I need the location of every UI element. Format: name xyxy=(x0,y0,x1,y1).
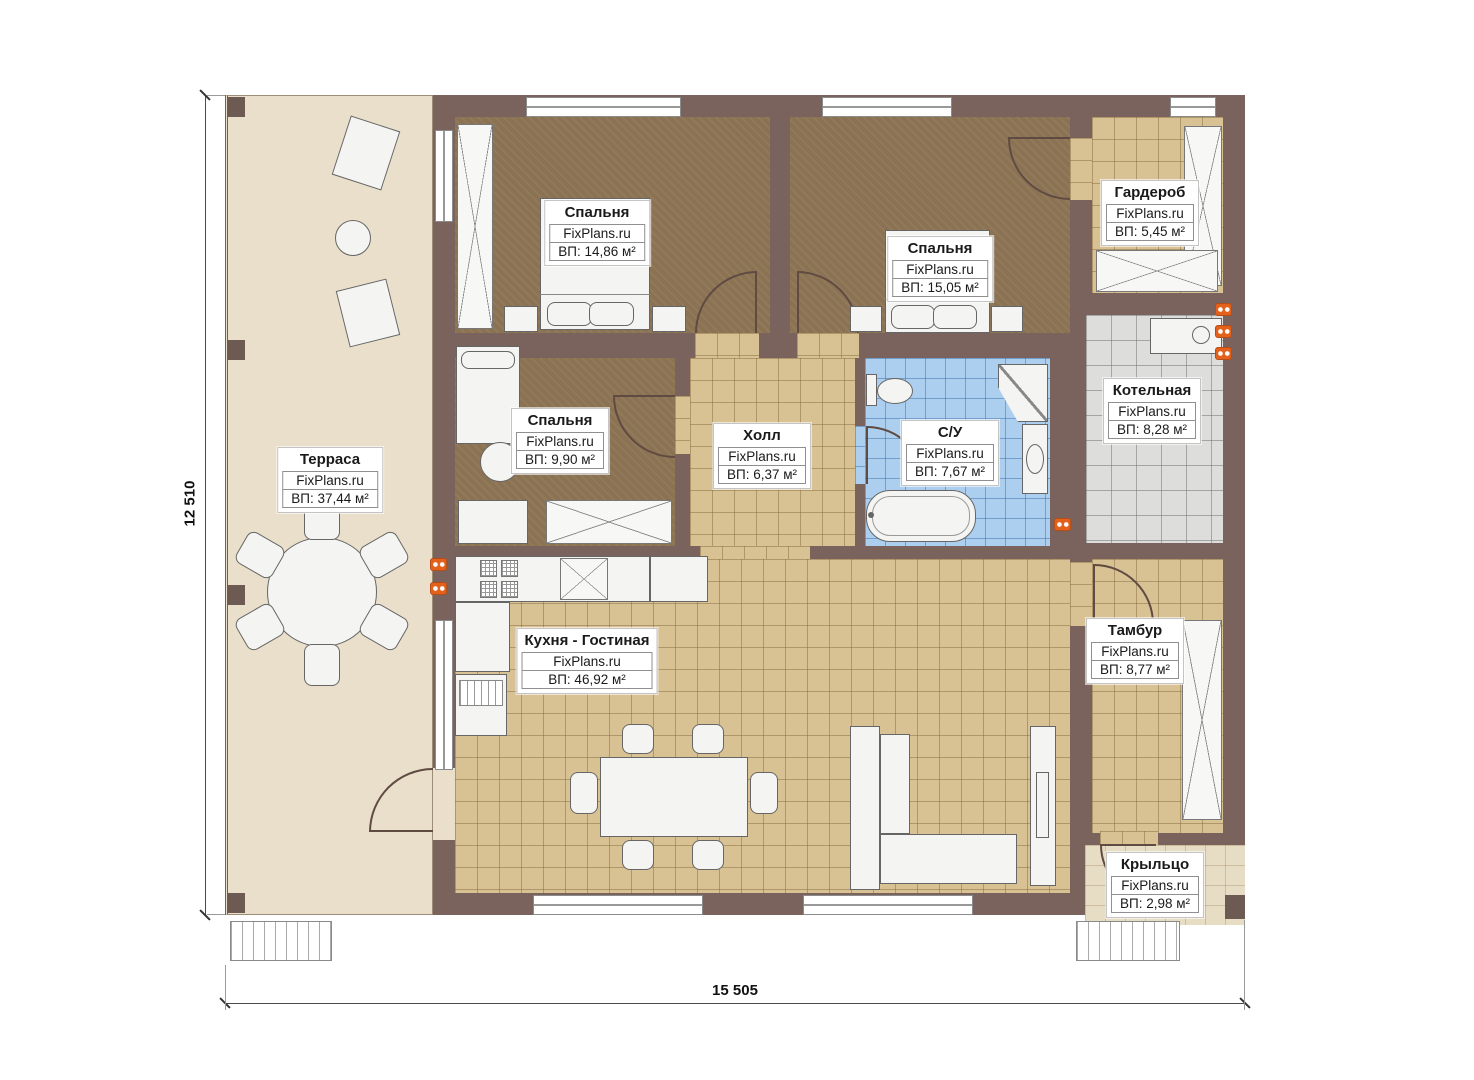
radiator-icon xyxy=(1054,518,1071,531)
pillow xyxy=(589,302,634,326)
room-label-bedroom2: Спальня FixPlans.ru ВП: 15,05 м² xyxy=(887,236,993,302)
room-name: Кухня - Гостиная xyxy=(522,632,653,652)
room-name: Гардероб xyxy=(1106,184,1194,204)
door-leaf xyxy=(1100,844,1156,846)
extension-line xyxy=(1244,920,1245,1010)
door-opening xyxy=(1070,562,1092,626)
room-area: ВП: 6,37 м² xyxy=(718,466,806,484)
room-area: ВП: 14,86 м² xyxy=(549,243,645,261)
room-area: ВП: 5,45 м² xyxy=(1106,223,1194,241)
porch-steps xyxy=(1076,921,1180,961)
tv xyxy=(1036,772,1049,838)
room-label-bathroom: С/У FixPlans.ru ВП: 7,67 м² xyxy=(901,420,999,486)
window xyxy=(1170,97,1216,117)
chair xyxy=(622,724,654,754)
wardrobe xyxy=(546,500,672,544)
brand-watermark: FixPlans.ru xyxy=(1108,402,1196,421)
door-opening xyxy=(855,426,865,484)
kitchen-sink xyxy=(560,558,608,600)
room-area: ВП: 15,05 м² xyxy=(892,279,988,297)
pillow xyxy=(933,305,977,329)
room-label-wardrobe: Гардероб FixPlans.ru ВП: 5,45 м² xyxy=(1101,180,1199,246)
bed-line xyxy=(540,294,650,295)
extension-line xyxy=(225,965,226,1010)
side-table xyxy=(335,220,371,256)
radiator-icon xyxy=(430,558,447,571)
pillow xyxy=(461,351,515,369)
radiator-icon xyxy=(1215,303,1232,316)
sink xyxy=(1026,444,1044,474)
toilet xyxy=(877,378,913,404)
nightstand xyxy=(652,306,686,332)
brand-watermark: FixPlans.ru xyxy=(516,432,604,451)
room-name: Котельная xyxy=(1108,382,1196,402)
room-name: С/У xyxy=(906,424,994,444)
stove-burner xyxy=(480,581,497,598)
room-area: ВП: 8,28 м² xyxy=(1108,421,1196,439)
wardrobe xyxy=(1182,620,1222,820)
wardrobe xyxy=(457,124,493,329)
room-area: ВП: 37,44 м² xyxy=(282,490,378,508)
door-leaf xyxy=(1093,564,1095,624)
room-label-kitchen-living: Кухня - Гостиная FixPlans.ru ВП: 46,92 м… xyxy=(517,628,658,694)
terrace-post xyxy=(227,340,245,360)
room-label-bedroom3: Спальня FixPlans.ru ВП: 9,90 м² xyxy=(511,408,609,474)
room-area: ВП: 9,90 м² xyxy=(516,451,604,469)
pillow xyxy=(547,302,592,326)
terrace-post xyxy=(227,97,245,117)
room-name: Холл xyxy=(718,427,806,447)
window xyxy=(435,130,453,222)
boiler-counter xyxy=(1150,318,1222,354)
door-opening xyxy=(797,333,859,358)
door-leaf xyxy=(613,395,675,397)
desk xyxy=(458,500,528,544)
door-leaf xyxy=(797,271,799,333)
chair xyxy=(304,644,340,686)
room-area: ВП: 7,67 м² xyxy=(906,463,994,481)
dimension-label-width: 15 505 xyxy=(685,982,785,999)
boiler-sink xyxy=(1192,326,1210,344)
brand-watermark: FixPlans.ru xyxy=(549,224,645,243)
chair xyxy=(692,840,724,870)
door-opening xyxy=(1070,138,1092,200)
brand-watermark: FixPlans.ru xyxy=(1091,642,1179,661)
dimension-label-height: 12 510 xyxy=(182,464,199,544)
terrace-post xyxy=(227,585,245,605)
room-area: ВП: 46,92 м² xyxy=(522,671,653,689)
brand-watermark: FixPlans.ru xyxy=(892,260,988,279)
room-area: ВП: 2,98 м² xyxy=(1111,895,1199,913)
door-leaf xyxy=(369,830,433,832)
stove-burner xyxy=(501,560,518,577)
door-opening xyxy=(675,396,690,454)
chair xyxy=(750,772,778,814)
sofa-chaise xyxy=(880,834,1017,884)
toilet-tank xyxy=(866,374,877,406)
door-leaf xyxy=(755,271,757,333)
brand-watermark: FixPlans.ru xyxy=(718,447,806,466)
room-area: ВП: 8,77 м² xyxy=(1091,661,1179,679)
brand-watermark: FixPlans.ru xyxy=(282,471,378,490)
brand-watermark: FixPlans.ru xyxy=(1111,876,1199,895)
room-label-vestibule: Тамбур FixPlans.ru ВП: 8,77 м² xyxy=(1086,618,1184,684)
chair xyxy=(570,772,598,814)
window xyxy=(533,895,703,915)
sofa-back xyxy=(850,726,880,890)
chair xyxy=(692,724,724,754)
brand-watermark: FixPlans.ru xyxy=(522,652,653,671)
door-opening xyxy=(695,333,759,358)
stove-burner xyxy=(480,560,497,577)
room-label-terrace: Терраса FixPlans.ru ВП: 37,44 м² xyxy=(277,447,383,513)
door-opening xyxy=(1100,831,1158,845)
fridge-vents xyxy=(459,680,503,706)
passage-opening xyxy=(700,546,810,559)
room-label-bedroom1: Спальня FixPlans.ru ВП: 14,86 м² xyxy=(544,200,650,266)
porch-post xyxy=(1225,895,1245,919)
nightstand xyxy=(504,306,538,332)
room-name: Тамбур xyxy=(1091,622,1179,642)
room-name: Спальня xyxy=(549,204,645,224)
bathtub-inner xyxy=(872,496,970,536)
room-name: Спальня xyxy=(516,412,604,432)
window xyxy=(526,97,681,117)
dimension-line-horizontal xyxy=(225,1003,1245,1004)
room-name: Терраса xyxy=(282,451,378,471)
room-label-boiler: Котельная FixPlans.ru ВП: 8,28 м² xyxy=(1103,378,1201,444)
window xyxy=(435,620,453,770)
kitchen-counter xyxy=(455,602,510,672)
dimension-line-vertical xyxy=(205,95,206,915)
nightstand xyxy=(850,306,882,332)
chair xyxy=(622,840,654,870)
door-opening xyxy=(433,768,455,840)
room-name: Спальня xyxy=(892,240,988,260)
terrace-steps xyxy=(230,921,332,961)
door-leaf xyxy=(866,426,868,484)
window xyxy=(822,97,952,117)
brand-watermark: FixPlans.ru xyxy=(906,444,994,463)
door-leaf xyxy=(1008,137,1070,139)
radiator-icon xyxy=(430,582,447,595)
room-label-hall: Холл FixPlans.ru ВП: 6,37 м² xyxy=(713,423,811,489)
sofa-seat xyxy=(880,734,910,834)
kitchen-counter xyxy=(650,556,708,602)
window xyxy=(803,895,973,915)
room-label-porch: Крыльцо FixPlans.ru ВП: 2,98 м² xyxy=(1106,852,1204,918)
extension-line xyxy=(207,914,225,915)
terrace-post xyxy=(227,893,245,913)
shelf-unit xyxy=(1096,250,1218,292)
room-name: Крыльцо xyxy=(1111,856,1199,876)
floor-plan: Терраса FixPlans.ru ВП: 37,44 м² Спальня… xyxy=(0,0,1474,1080)
brand-watermark: FixPlans.ru xyxy=(1106,204,1194,223)
stove-burner xyxy=(501,581,518,598)
dining-table xyxy=(600,757,748,837)
extension-line xyxy=(207,95,225,96)
bath-tap xyxy=(868,512,874,518)
pillow xyxy=(891,305,935,329)
radiator-icon xyxy=(1215,347,1232,360)
nightstand xyxy=(991,306,1023,332)
radiator-icon xyxy=(1215,325,1232,338)
